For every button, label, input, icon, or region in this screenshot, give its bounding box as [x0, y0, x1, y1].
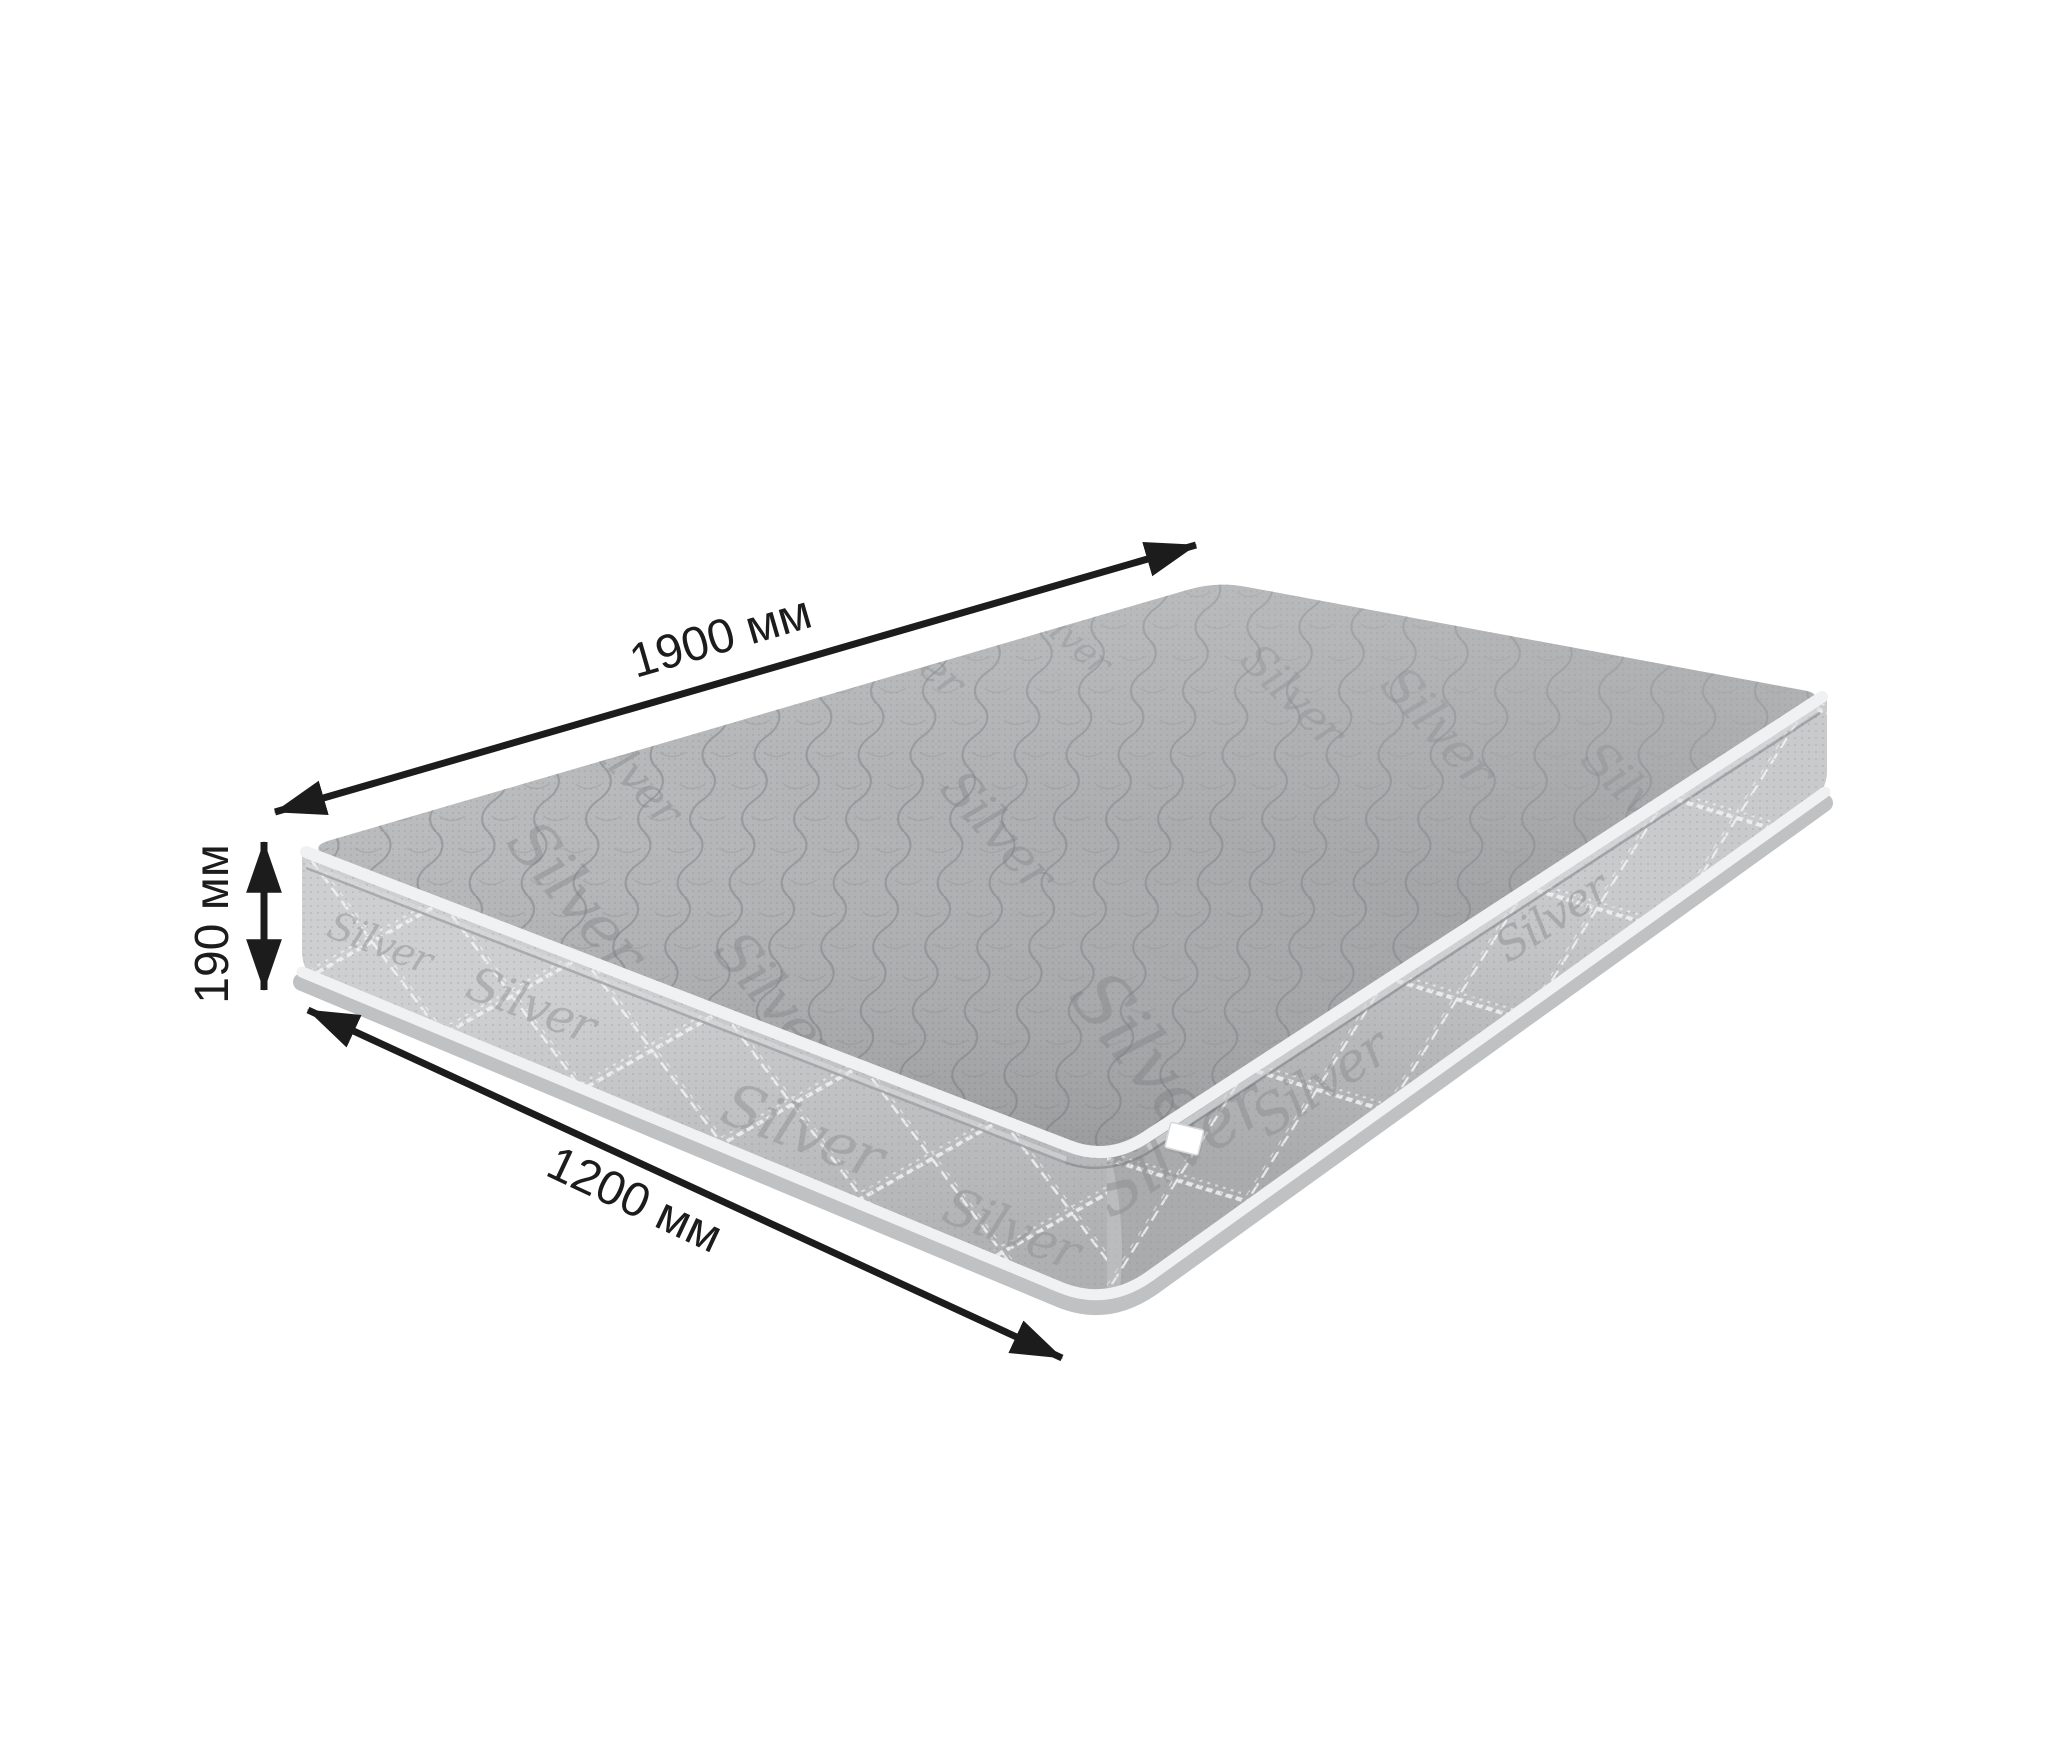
length-dimension-label: 1900 мм: [624, 586, 818, 689]
mattress: [280, 560, 1850, 1360]
dimension-diagram: Silver: [0, 0, 2048, 1757]
height-dimension-label: 190 мм: [186, 844, 239, 1003]
mattress-dimensions-figure: Silver: [0, 0, 2048, 1757]
